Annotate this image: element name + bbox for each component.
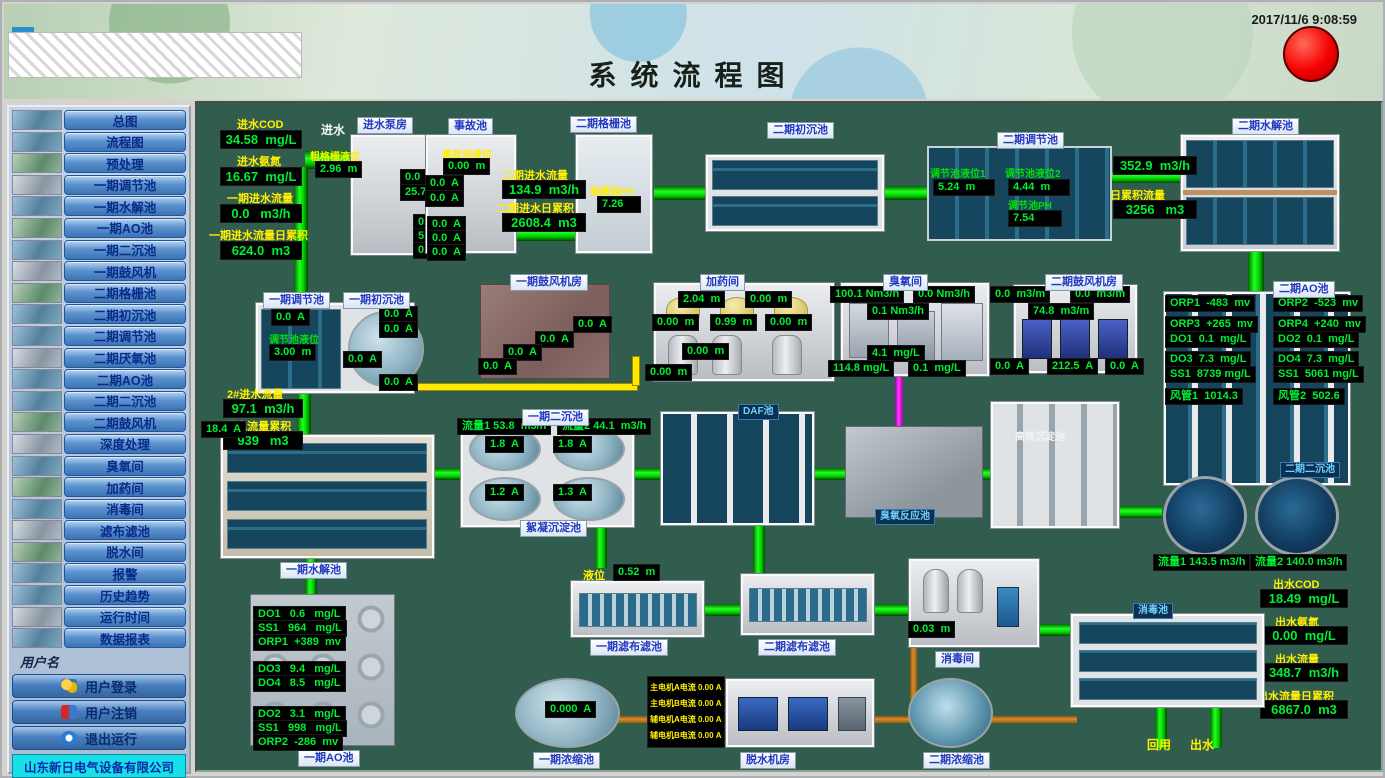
nav-label[interactable]: 流程图 [64, 132, 186, 152]
out-cod-value: 18.49 mg/L [1260, 589, 1348, 608]
p2-inflow-total-value: 2608.4 m3 [502, 213, 586, 232]
window-frame: 系统流程图 2017/11/6 9:08:59 总图 流程图 预处理 一期调节池… [0, 0, 1385, 778]
hyd2-total-value: 3256 m3 [1113, 200, 1197, 219]
dosing-level: 0.00 m [745, 291, 792, 308]
out-nh3-value: 0.00 mg/L [1260, 626, 1348, 645]
sidebar-item-pretreatment[interactable]: 预处理 [12, 153, 186, 173]
p2-primary-sed-tank [705, 154, 885, 232]
thumbnail-image [12, 240, 62, 260]
ozone-equipment [941, 303, 983, 361]
hyd2-flow-value: 352.9 m3/h [1113, 156, 1197, 175]
inlet-nh3-value: 16.67 mg/L [220, 167, 302, 186]
dewater-machine [788, 697, 828, 731]
pipe-disroom-to-dispool [1039, 624, 1071, 636]
pipe-filter2-to-disroom [873, 604, 909, 616]
thumbnail-image [12, 196, 62, 216]
ozone-flow: 0.1 Nm3/h [867, 303, 929, 320]
p2-ao-tag: 二期AO池 [1273, 281, 1335, 298]
sed1p-current: 0.0 A [379, 321, 418, 338]
sed1-current: 1.8 A [485, 436, 524, 453]
p2-clarifier-circle [1163, 476, 1247, 556]
ao2-duct2: 风管2 502.6 [1273, 388, 1345, 405]
ozone-conc: 114.8 mg/L [828, 360, 894, 377]
dosing-level: 0.99 m [710, 314, 757, 331]
accident-pump-current: 0.0 A [425, 190, 464, 207]
sidebar-item-runtime[interactable]: 运行时间 [12, 607, 186, 627]
ozone-room-tag: 臭氧间 [883, 274, 928, 291]
p2-primary-sed-tag: 二期初沉池 [767, 122, 834, 139]
blower1-current: 0.0 A [573, 316, 612, 333]
accident-pump-current: 0.0 A [427, 244, 466, 261]
disinfection-room-tag: 消毒间 [935, 651, 980, 668]
p1-inflow-total-value: 624.0 m3 [220, 241, 302, 260]
nav-label[interactable]: 二期AO池 [64, 369, 186, 389]
dewater-machine [838, 697, 866, 731]
p1-hydrolysis-tank [220, 434, 435, 559]
p1-thickener-tag: 一期浓缩池 [533, 752, 600, 769]
thumbnail-image [12, 110, 62, 130]
filter1-level-label: 液位 [583, 567, 605, 583]
sidebar-item-alarm[interactable]: 报警 [12, 563, 186, 583]
daf-pool [660, 411, 815, 526]
nav-label[interactable]: 滤布滤池 [64, 520, 186, 540]
nav-label[interactable]: 运行时间 [64, 607, 186, 627]
alarm-indicator-button[interactable] [1283, 26, 1339, 82]
nav-label[interactable]: 深度处理 [64, 434, 186, 454]
pipe-daf-to-filter2 [753, 524, 765, 574]
nav-label[interactable]: 二期厌氧池 [64, 348, 186, 368]
sed1-current: 1.3 A [553, 484, 592, 501]
sidebar-item-p2-secondary-sed[interactable]: 二期二沉池 [12, 391, 186, 411]
ao2-orp1: ORP1 -483 mv [1165, 295, 1255, 312]
sed1-current: 1.8 A [553, 436, 592, 453]
thumbnail-image [12, 477, 62, 497]
reg2-level1-value: 5.24 m [933, 179, 995, 196]
sidebar-item-p1-ao[interactable]: 一期AO池 [12, 218, 186, 238]
p2-cloth-filter-tag: 二期滤布滤池 [758, 639, 836, 656]
thumbnail-image [12, 456, 62, 476]
reg2-level1-label: 调节池液位1 [930, 165, 986, 180]
blower-unit [1022, 319, 1052, 359]
datetime-display: 2017/11/6 9:08:59 [1251, 12, 1357, 27]
hes-structure [990, 401, 1120, 529]
p1-inflow-value: 0.0 m3/h [220, 204, 302, 223]
hyd2-cells [1186, 140, 1334, 188]
nav-label[interactable]: 二期初沉池 [64, 304, 186, 324]
disinfection-lane [1079, 622, 1257, 644]
ozone-conc: 0.1 mg/L [908, 360, 966, 377]
sidebar-item-dewatering-room[interactable]: 脱水间 [12, 542, 186, 562]
user-login-label: 用户登录 [85, 677, 137, 696]
flow-diagram-canvas: 进水COD 34.58 mg/L 进水氨氮 16.67 mg/L 一期进水流量 … [195, 101, 1383, 772]
p1-cloth-filter-tag: 一期滤布滤池 [590, 639, 668, 656]
nav-label[interactable]: 一期AO池 [64, 218, 186, 238]
p2-thickener [908, 678, 993, 748]
header-banner: 系统流程图 2017/11/6 9:08:59 [4, 4, 1383, 99]
thumbnail-image [12, 369, 62, 389]
thumbnail-image [12, 261, 62, 281]
nav-label[interactable]: 二期格栅池 [64, 283, 186, 303]
disinfection-lane [1079, 678, 1257, 700]
sidebar-item-ozone-room[interactable]: 臭氧间 [12, 456, 186, 476]
thumbnail-image [12, 499, 62, 519]
sed1p-current: 0.0 A [343, 351, 382, 368]
filter-basin [579, 593, 697, 627]
motor-row: 辅电机B电流 0.00 A [650, 728, 722, 744]
dosing-level: 0.00 m [645, 364, 692, 381]
sidebar-item-overview[interactable]: 总图 [12, 110, 186, 130]
screen-ph-value: 7.26 [597, 196, 641, 213]
ao1-reading: ORP1 +389 mv [253, 634, 346, 651]
disinfection-lane [1079, 650, 1257, 672]
ao2-do2: DO2 0.1 mg/L [1273, 331, 1359, 348]
sidebar-item-p1-regulating[interactable]: 一期调节池 [12, 175, 186, 195]
p2-screen-tag: 二期格栅池 [570, 116, 637, 133]
nav-label[interactable]: 一期调节池 [64, 175, 186, 195]
blower2-air: 0.0 m3/m [990, 286, 1050, 303]
disinfection-tank [923, 569, 949, 613]
motor-row: 主电机B电流 0.00 A [650, 696, 722, 712]
blower-unit [1060, 319, 1090, 359]
dewatering-room-tag: 脱水机房 [740, 752, 796, 769]
nav-label[interactable]: 历史趋势 [64, 585, 186, 605]
exit-label: 退出运行 [85, 729, 137, 748]
blower2-current: 0.0 A [990, 358, 1029, 375]
reg1-level-value: 3.00 m [269, 344, 316, 361]
nav-label[interactable]: 脱水间 [64, 542, 186, 562]
disinfection-pool-tag: 消毒池 [1133, 603, 1173, 619]
p2-regulating-tag: 二期调节池 [997, 132, 1064, 149]
nav-label[interactable]: 消毒间 [64, 499, 186, 519]
sidebar-item-p1-blower[interactable]: 一期鼓风机 [12, 261, 186, 281]
sidebar-item-cloth-filter[interactable]: 滤布滤池 [12, 520, 186, 540]
thumbnail-image [12, 563, 62, 583]
thumbnail-image [12, 304, 62, 324]
reg2-ph-value: 7.54 [1008, 210, 1062, 227]
sidebar-item-p2-anaerobic[interactable]: 二期厌氧池 [12, 348, 186, 368]
nav-label[interactable]: 二期鼓风机 [64, 412, 186, 432]
p1-primary-sed-tag: 一期初沉池 [343, 292, 410, 309]
hyd1-lane [227, 481, 427, 511]
sidebar-item-p1-secondary-sed[interactable]: 一期二沉池 [12, 240, 186, 260]
hyd2-cells [1186, 197, 1334, 245]
pipe-filter1-to-filter2 [705, 604, 741, 616]
motor-row: 辅电机A电流 0.00 A [650, 712, 722, 728]
thumbnail-image [12, 283, 62, 303]
ao2-ss1: SS1 8739 mg/L [1165, 366, 1256, 383]
sidebar-item-p2-ao[interactable]: 二期AO池 [12, 369, 186, 389]
nav-label[interactable]: 总图 [64, 110, 186, 130]
thumbnail-image [12, 585, 62, 605]
ozone-reactor-tag: 臭氧反应池 [875, 509, 935, 525]
ao2-duct1: 风管1 1014.3 [1165, 388, 1243, 405]
nav-label[interactable]: 预处理 [64, 153, 186, 173]
filter-basin [749, 588, 867, 622]
p2-clarifier-circle [1255, 476, 1339, 556]
hyd1-current: 18.4 A [201, 421, 246, 438]
hyd2-return-pipe [1183, 190, 1337, 195]
nav-label[interactable]: 一期水解池 [64, 196, 186, 216]
nav-label[interactable]: 一期二沉池 [64, 240, 186, 260]
navigation-sidebar: 总图 流程图 预处理 一期调节池 一期水解池 一期AO池 一期二沉池 一期鼓风机… [7, 105, 191, 774]
user-login-button[interactable]: 用户登录 [12, 674, 186, 698]
user-login-icon [61, 679, 77, 693]
thumbnail-image [12, 607, 62, 627]
user-logout-label: 用户注销 [85, 703, 137, 722]
reg2-level2-value: 4.44 m [1008, 179, 1070, 196]
sidebar-item-flow-diagram[interactable]: 流程图 [12, 132, 186, 152]
outlet-water-label: 出水 [1190, 736, 1214, 753]
sidebar-item-dosing-room[interactable]: 加药间 [12, 477, 186, 497]
exit-icon [61, 731, 77, 745]
sidebar-item-p2-screen[interactable]: 二期格栅池 [12, 283, 186, 303]
reuse-water-label: 回用 [1147, 736, 1171, 753]
pipe-hyd1-to-sed1 [435, 468, 463, 480]
nav-label[interactable]: 臭氧间 [64, 456, 186, 476]
sed1p-current: 0.0 A [379, 374, 418, 391]
flocculation-sed-tag: 絮凝沉淀池 [520, 520, 587, 537]
thumbnail-image [12, 434, 62, 454]
disinfection-level: 0.03 m [908, 621, 955, 638]
disinfection-pump [997, 587, 1019, 627]
sidebar-item-history-trend[interactable]: 历史趋势 [12, 585, 186, 605]
accident-pool-tag: 事故池 [448, 118, 493, 135]
pipe-sed1-to-daf [635, 468, 661, 480]
pipe-screen-to-sed [654, 186, 707, 200]
nav-label[interactable]: 二期调节池 [64, 326, 186, 346]
dewatering-room [725, 678, 875, 748]
out-total-value: 6867.0 m3 [1260, 700, 1348, 719]
exit-run-button[interactable]: 退出运行 [12, 726, 186, 750]
pipe-hes-to-sed2 [1120, 506, 1162, 518]
username-label: 用户名 [20, 652, 186, 671]
out-flow-value: 348.7 m3/h [1260, 663, 1348, 682]
thumbnail-image [12, 542, 62, 562]
sidebar-item-p2-regulating[interactable]: 二期调节池 [12, 326, 186, 346]
blower2-air: 74.8 m3/m [1028, 303, 1094, 320]
nav-label[interactable]: 加药间 [64, 477, 186, 497]
dosing-level: 0.00 m [765, 314, 812, 331]
sed2-flow2: 流量2 140.0 m3/h [1250, 554, 1347, 571]
disinfection-pool [1070, 613, 1265, 708]
pipe-sed-to-reg2 [885, 186, 929, 200]
page-title: 系统流程图 [4, 54, 1383, 94]
reg1-current-top: 0.0 A [271, 309, 310, 326]
thumbnail-image [12, 412, 62, 432]
pipe-sed1-to-filter1 [595, 528, 607, 568]
dosing-tank-silver [772, 335, 802, 375]
dosing-level: 0.00 m [652, 314, 699, 331]
ao2-do1: DO1 0.1 mg/L [1165, 331, 1251, 348]
ao2-ss2: SS1 5061 mg/L [1273, 366, 1364, 383]
company-name-bar: 山东新日电气设备有限公司 [12, 754, 186, 778]
p2-inflow-value: 134.9 m3/h [502, 180, 586, 199]
thumbnail-image [12, 218, 62, 238]
thumbnail-image [12, 520, 62, 540]
pipe-daf-to-ozone [815, 468, 847, 480]
pipe-hyd2-to-ao2 [1248, 252, 1264, 294]
hes-tag: 高效沉淀池 [1015, 428, 1065, 443]
blower2-current: 0.0 A [1105, 358, 1144, 375]
sed-lane [712, 196, 878, 226]
nav-label[interactable]: 报警 [64, 563, 186, 583]
sidebar-item-p2-blower[interactable]: 二期鼓风机 [12, 412, 186, 432]
nav-label[interactable]: 一期鼓风机 [64, 261, 186, 281]
sed2-flow1: 流量1 143.5 m3/h [1153, 554, 1250, 571]
thumbnail-image [12, 153, 62, 173]
sidebar-item-advanced-treatment[interactable]: 深度处理 [12, 434, 186, 454]
pump-house-tag: 进水泵房 [357, 117, 413, 134]
thumbnail-image [12, 175, 62, 195]
daf-pool-tag: DAF池 [738, 404, 779, 420]
nav-label[interactable]: 数据报表 [64, 628, 186, 648]
blower2-current: 212.5 A [1047, 358, 1098, 375]
p2-thickener-tag: 二期浓缩池 [923, 752, 990, 769]
thumbnail-image [12, 628, 62, 648]
user-logout-button[interactable]: 用户注销 [12, 700, 186, 724]
disinfection-tank [957, 569, 983, 613]
sed1-current: 1.2 A [485, 484, 524, 501]
dewater-machine [738, 697, 778, 731]
ozone-reactor-structure [845, 426, 983, 518]
blower1-current: 0.0 A [478, 358, 517, 375]
nav-label[interactable]: 二期二沉池 [64, 391, 186, 411]
p2-blower-tag: 二期鼓风机房 [1045, 274, 1123, 291]
pipe-yellow-vertical [632, 356, 640, 386]
dosing-level: 0.00 m [682, 343, 729, 360]
blower-unit [1098, 319, 1128, 359]
p1-regulating-tag: 一期调节池 [263, 292, 330, 309]
p1-ao-tag: 一期AO池 [298, 750, 360, 767]
thickener1-current: 0.000 A [545, 701, 596, 718]
inlet-water-label: 进水 [321, 121, 345, 138]
sidebar-item-disinfection-room[interactable]: 消毒间 [12, 499, 186, 519]
p2-hydrolysis-tag: 二期水解池 [1232, 118, 1299, 135]
p1-secondary-sed-tag: 一期二沉池 [522, 409, 589, 426]
thumbnail-image [12, 348, 62, 368]
sidebar-item-p1-hydrolysis[interactable]: 一期水解池 [12, 196, 186, 216]
pump2-flow-value: 97.1 m3/h [223, 399, 303, 418]
pipe-magenta-ozone [895, 376, 903, 428]
p2-hydrolysis-tank [1180, 134, 1340, 252]
motor-row: 主电机A电流 0.00 A [650, 680, 722, 696]
p1-cloth-filter-room [570, 580, 705, 638]
thumbnail-image [12, 132, 62, 152]
user-logout-icon [61, 705, 77, 719]
sidebar-item-p2-primary-sed[interactable]: 二期初沉池 [12, 304, 186, 324]
coarse-screen-level-value: 2.96 m [315, 161, 362, 178]
p1-blower-tag: 一期鼓风机房 [510, 274, 588, 291]
sed-lane [712, 160, 878, 190]
ao1-reading: ORP2 -286 mv [253, 734, 343, 751]
dewater-motor-panel: 主电机A电流 0.00 A 主电机B电流 0.00 A 辅电机A电流 0.00 … [647, 676, 725, 748]
sidebar-item-data-report[interactable]: 数据报表 [12, 628, 186, 648]
dosing-level: 2.04 m [678, 291, 725, 308]
p1-hydrolysis-tag: 一期水解池 [280, 562, 347, 579]
p2-cloth-filter-room [740, 573, 875, 636]
dosing-room-tag: 加药间 [700, 274, 745, 291]
inlet-cod-value: 34.58 mg/L [220, 130, 302, 149]
ao1-reading: DO4 8.5 mg/L [253, 675, 346, 692]
thumbnail-image [12, 391, 62, 411]
filter1-level-value: 0.52 m [613, 564, 660, 581]
accident-level-value: 0.00 m [443, 158, 490, 175]
reg2-level2-label: 调节池液位2 [1005, 165, 1061, 180]
p2-secondary-sed-tag: 二期二沉池 [1280, 462, 1340, 478]
thumbnail-image [12, 326, 62, 346]
hyd1-lane [227, 519, 427, 549]
